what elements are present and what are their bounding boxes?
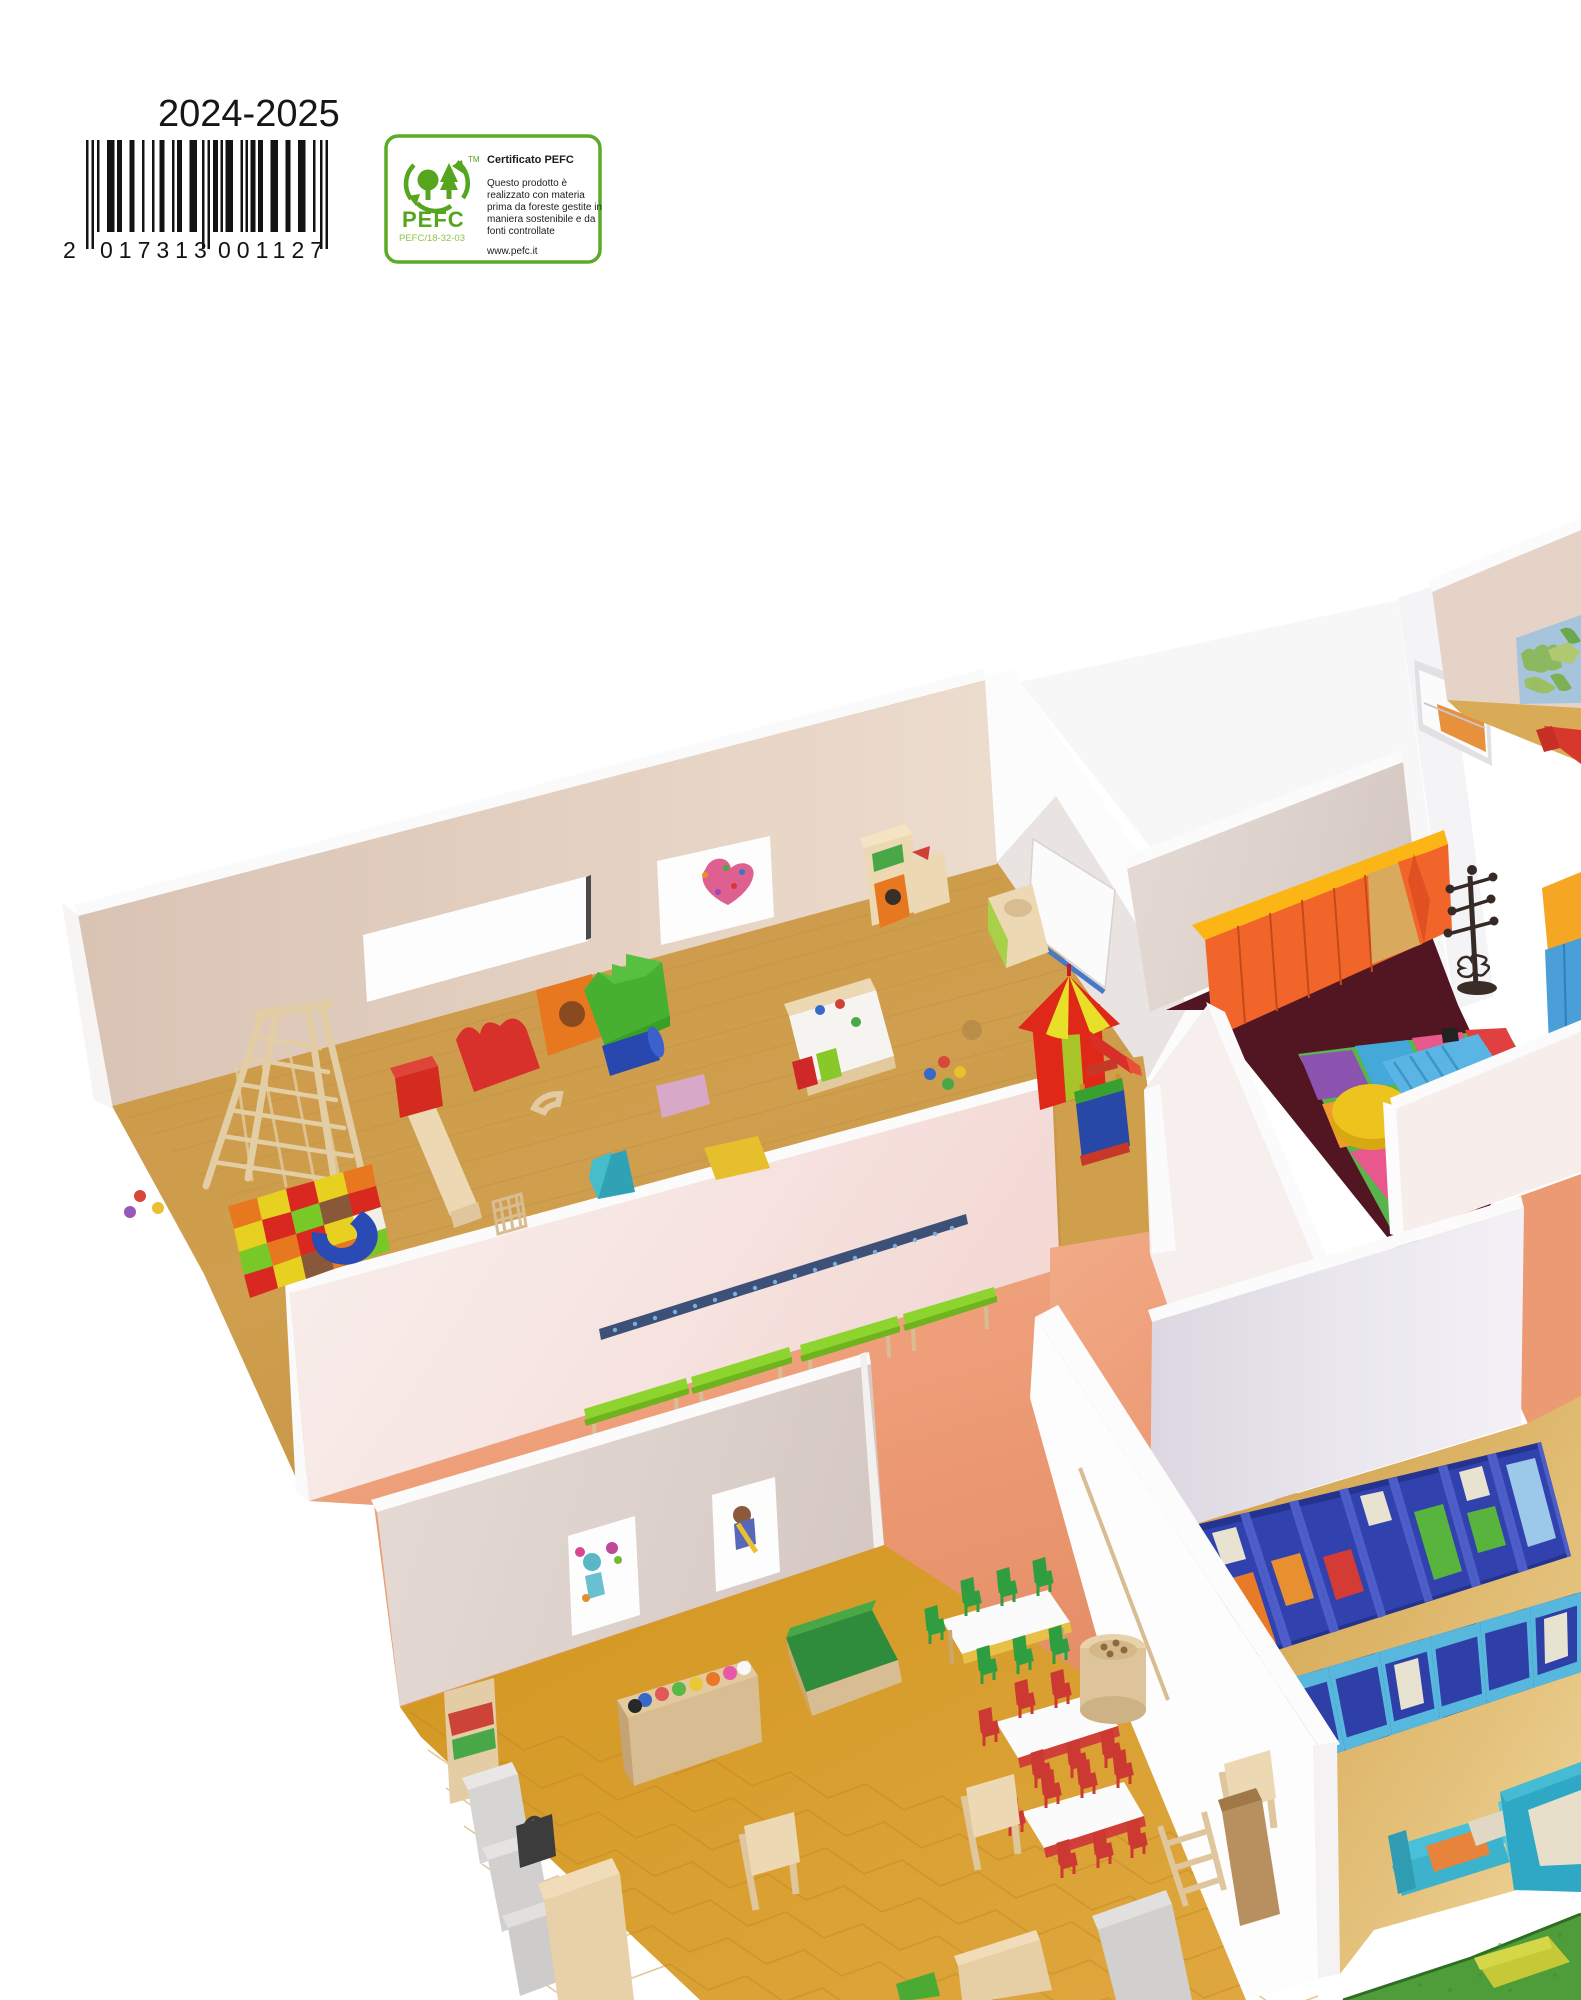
svg-text:prima da foreste gestite in: prima da foreste gestite in [487,202,602,213]
svg-text:realizzato con materia: realizzato con materia [487,190,585,201]
svg-text:www.pefc.it: www.pefc.it [486,246,538,257]
svg-text:PEFC: PEFC [402,207,465,232]
svg-text:017313: 017313 [100,237,213,263]
svg-text:Certificato PEFC: Certificato PEFC [487,154,574,166]
svg-text:fonti controllate: fonti controllate [487,226,555,237]
svg-text:2024-2025: 2024-2025 [158,93,340,135]
svg-text:TM: TM [468,155,480,164]
svg-text:2: 2 [63,237,76,263]
svg-text:PEFC/18-32-03: PEFC/18-32-03 [399,233,465,244]
svg-text:001127: 001127 [218,237,329,263]
svg-text:maniera sostenibile e da: maniera sostenibile e da [487,214,596,225]
svg-text:Questo prodotto è: Questo prodotto è [487,178,567,189]
